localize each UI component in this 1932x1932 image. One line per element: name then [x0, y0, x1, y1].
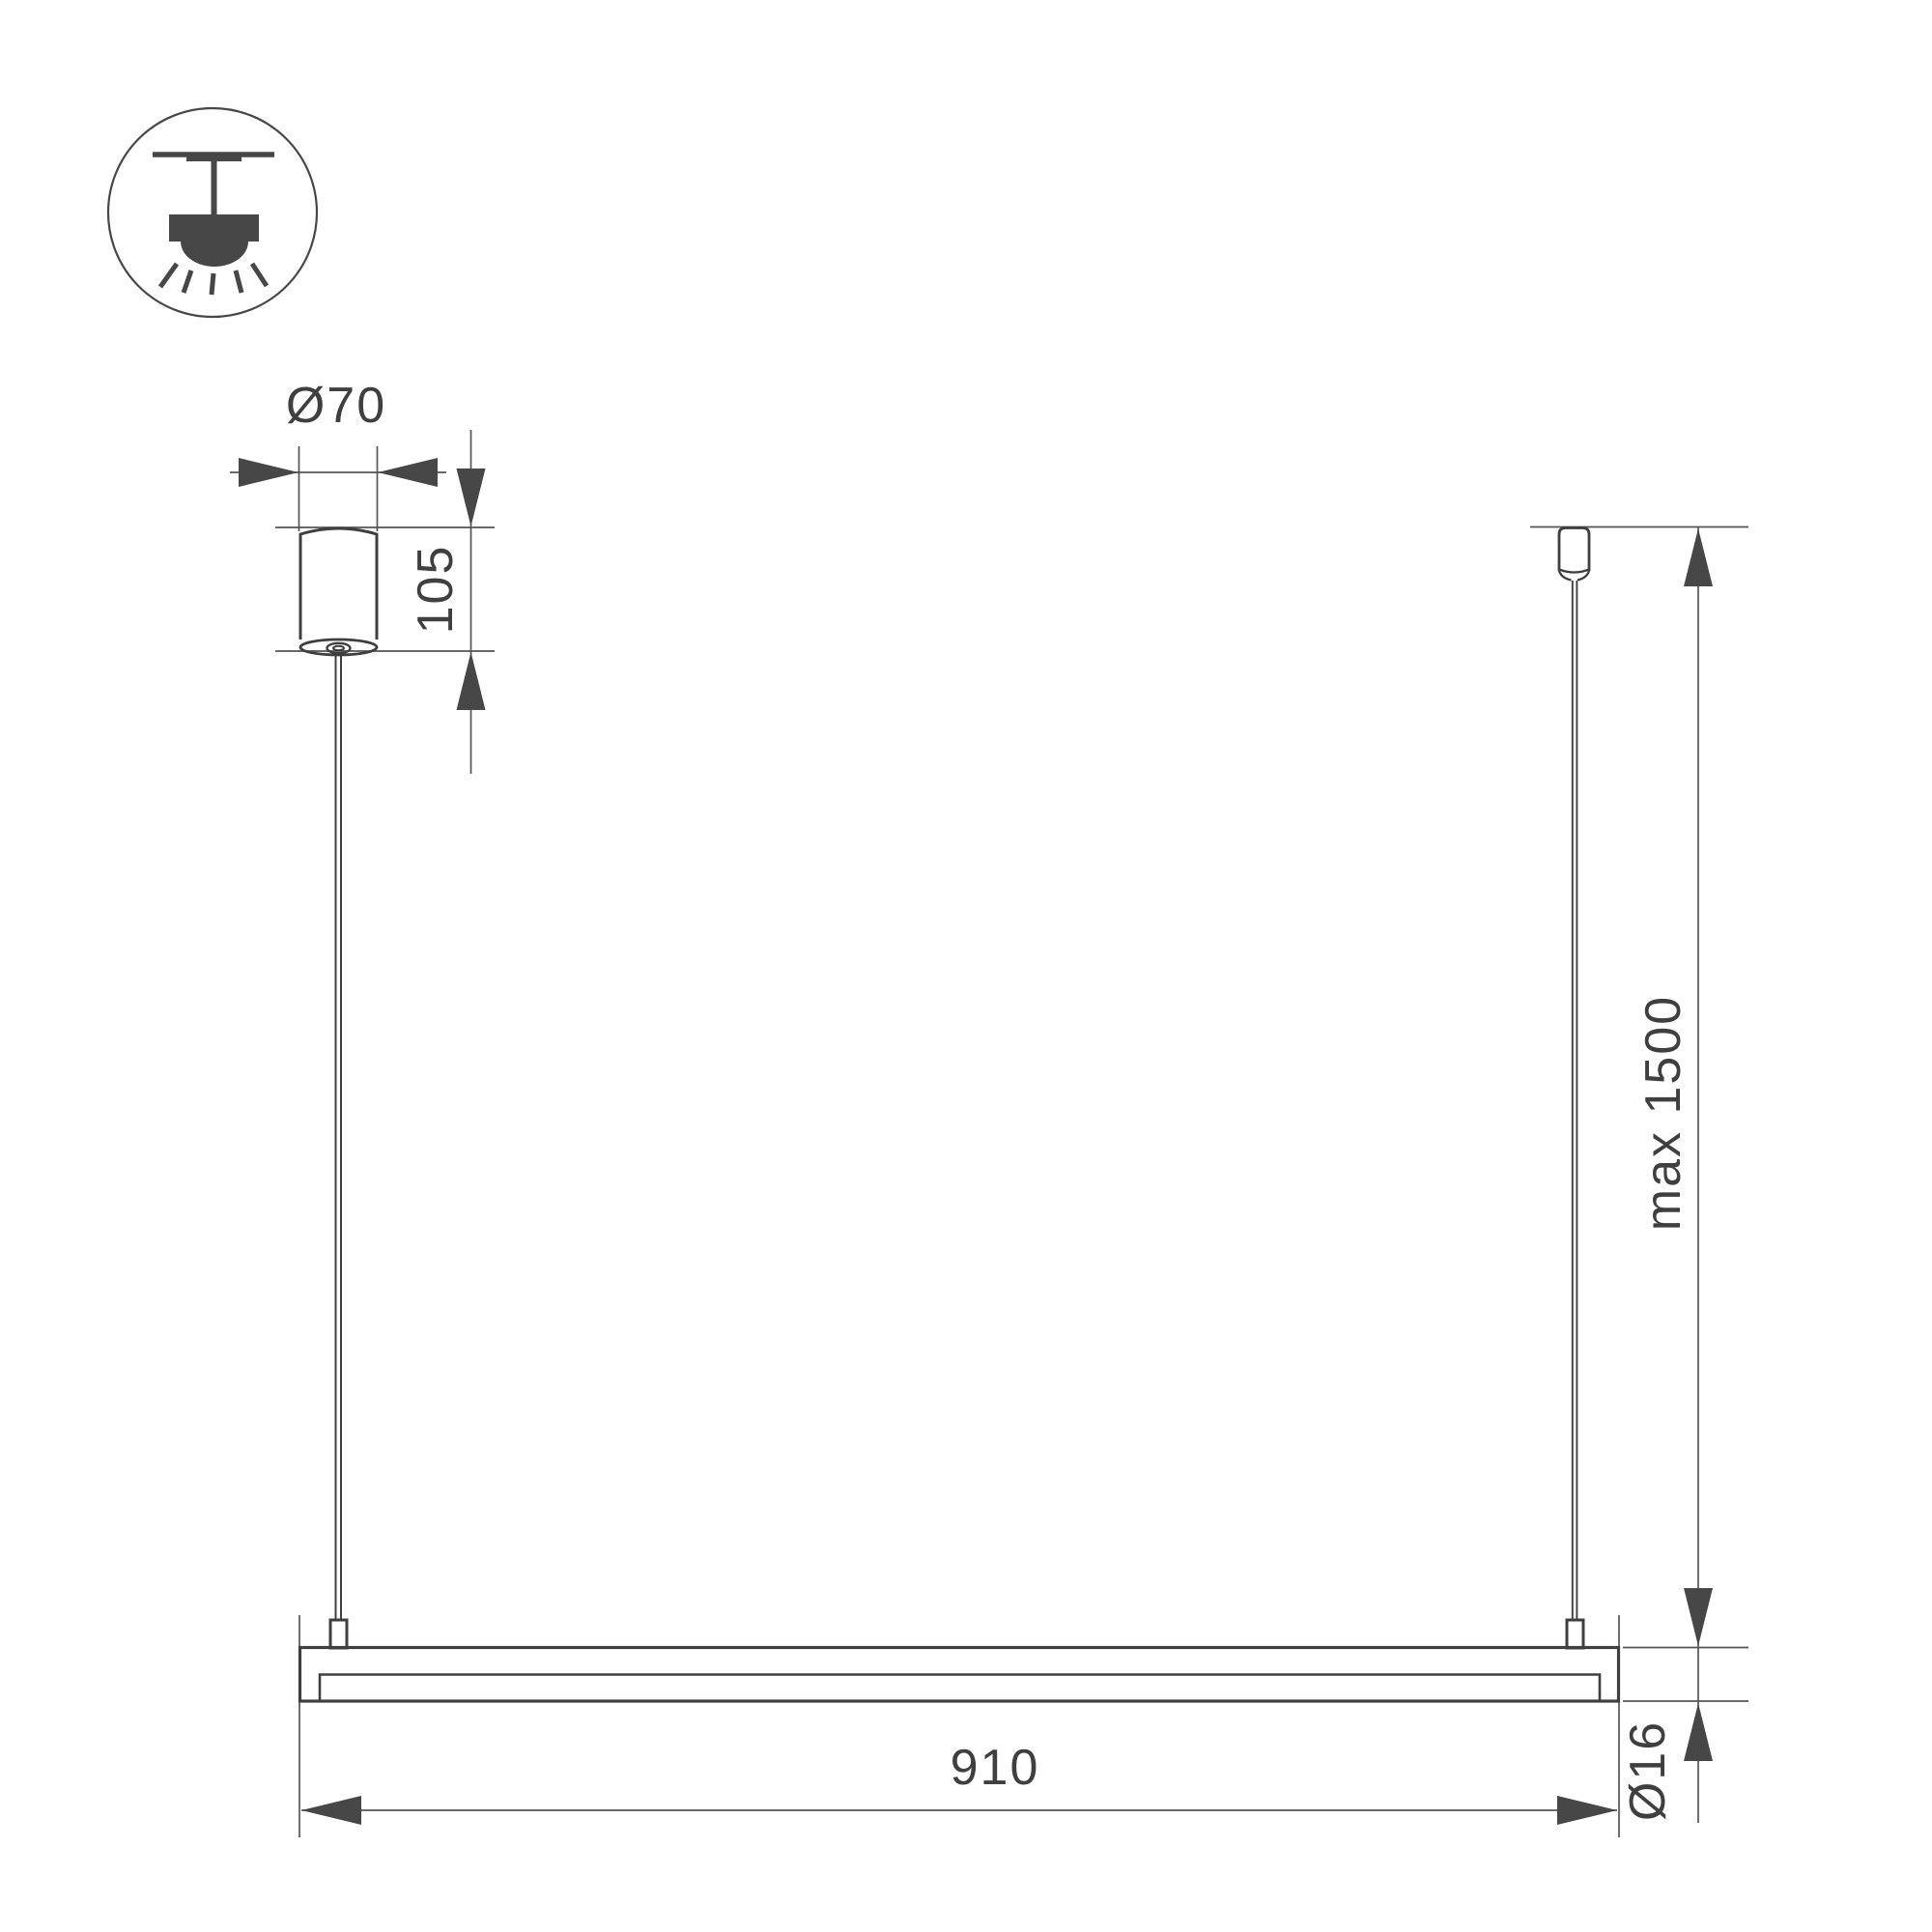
suspension-length-value: max 1500 [1635, 995, 1691, 1231]
canopy-height-value: 105 [408, 545, 464, 635]
dimension-drawing: Ø70 105 max 1500 910 Ø16 [0, 0, 1932, 1932]
bar-length-value: 910 [951, 1740, 1040, 1796]
background [0, 0, 1932, 1932]
bar-diameter-value: Ø16 [1620, 1720, 1676, 1821]
drawing-canvas: Ø70 105 max 1500 910 Ø16 [0, 0, 1932, 1932]
icon-mount-plate [186, 155, 241, 161]
canopy-diameter-value: Ø70 [286, 378, 386, 434]
icon-lamp-body [169, 214, 259, 241]
